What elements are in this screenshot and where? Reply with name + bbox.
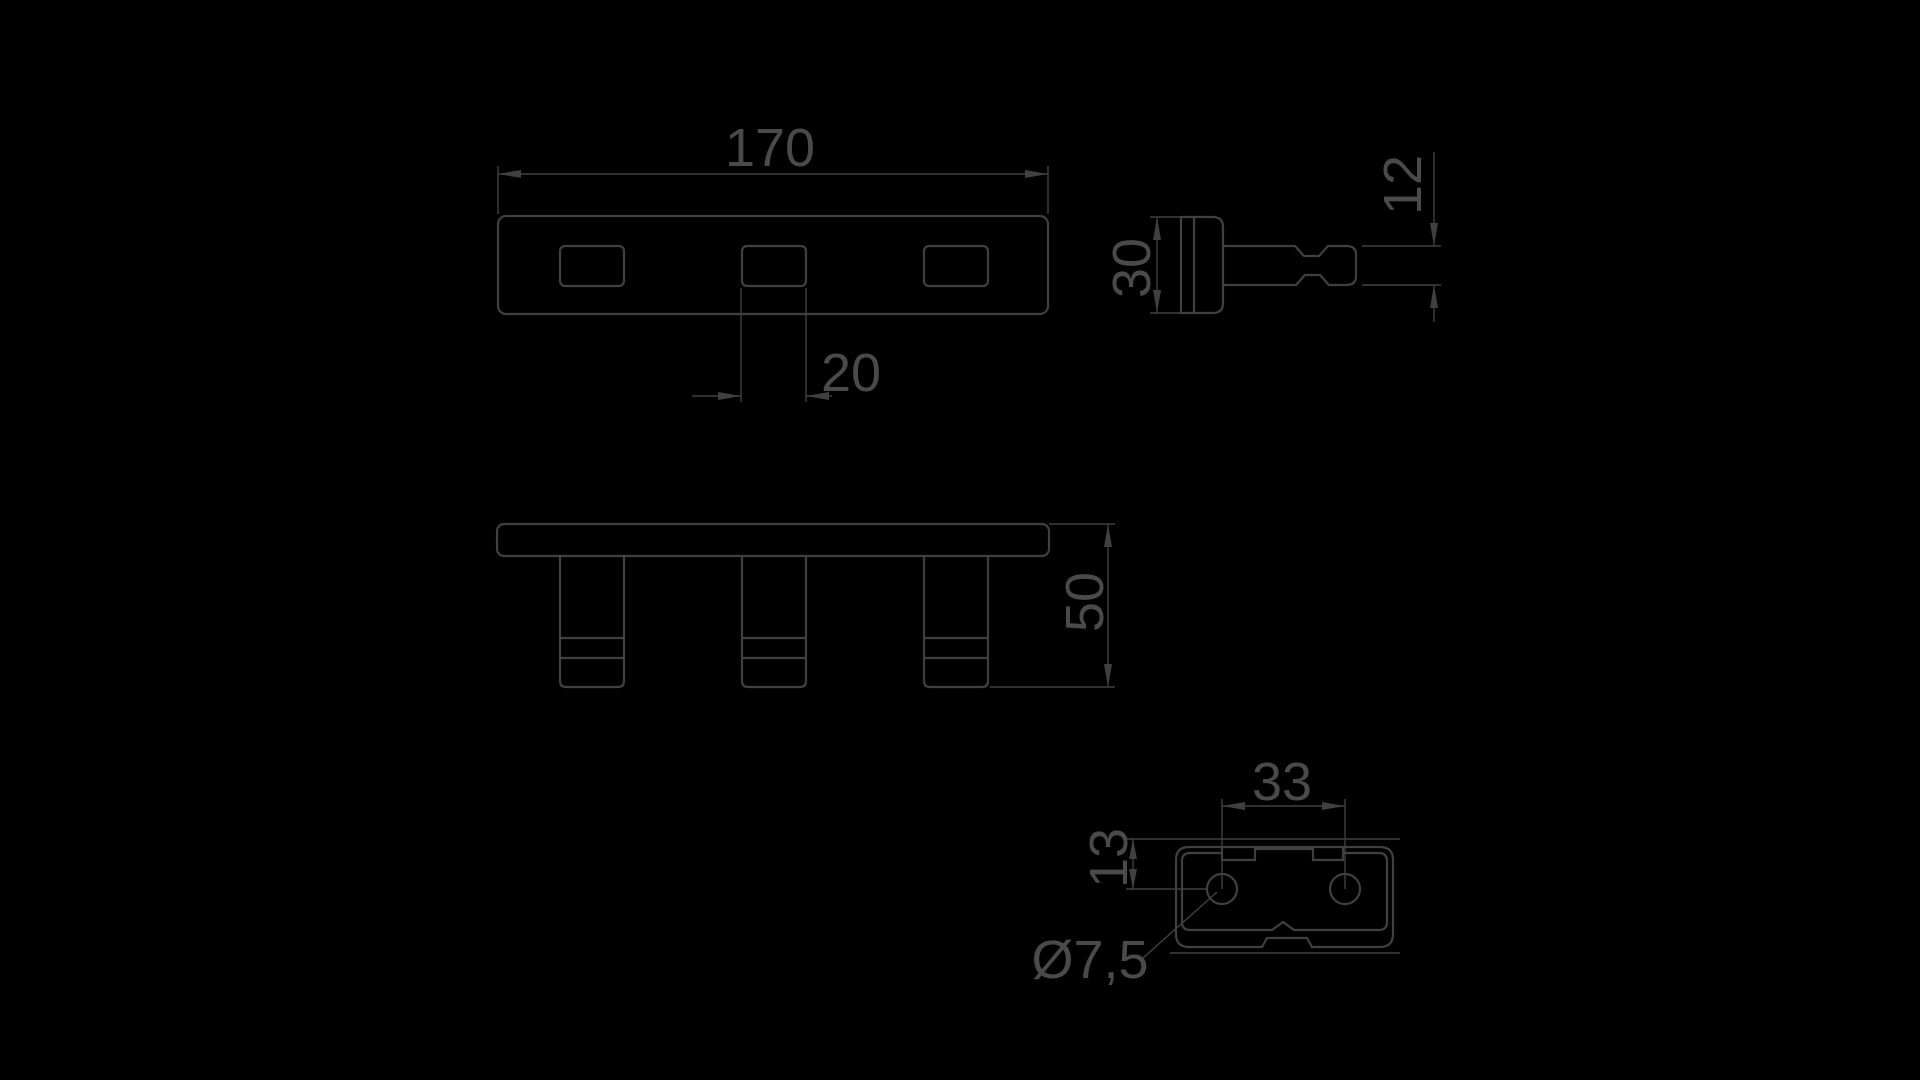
technical-drawing-canvas: 170 20 30 12 50 33 13 Ø7,5 <box>0 0 1920 1080</box>
drawing-background <box>0 0 1920 1080</box>
dim-33-label: 33 <box>1252 752 1312 812</box>
dim-20-label: 20 <box>821 343 881 403</box>
dim-170-label: 170 <box>725 118 815 178</box>
dim-13-label: 13 <box>1079 828 1139 888</box>
dim-50-label: 50 <box>1055 572 1115 632</box>
dim-30-label: 30 <box>1102 238 1162 298</box>
dim-12-label: 12 <box>1373 155 1433 215</box>
dim-diameter-label: Ø7,5 <box>1031 930 1148 990</box>
